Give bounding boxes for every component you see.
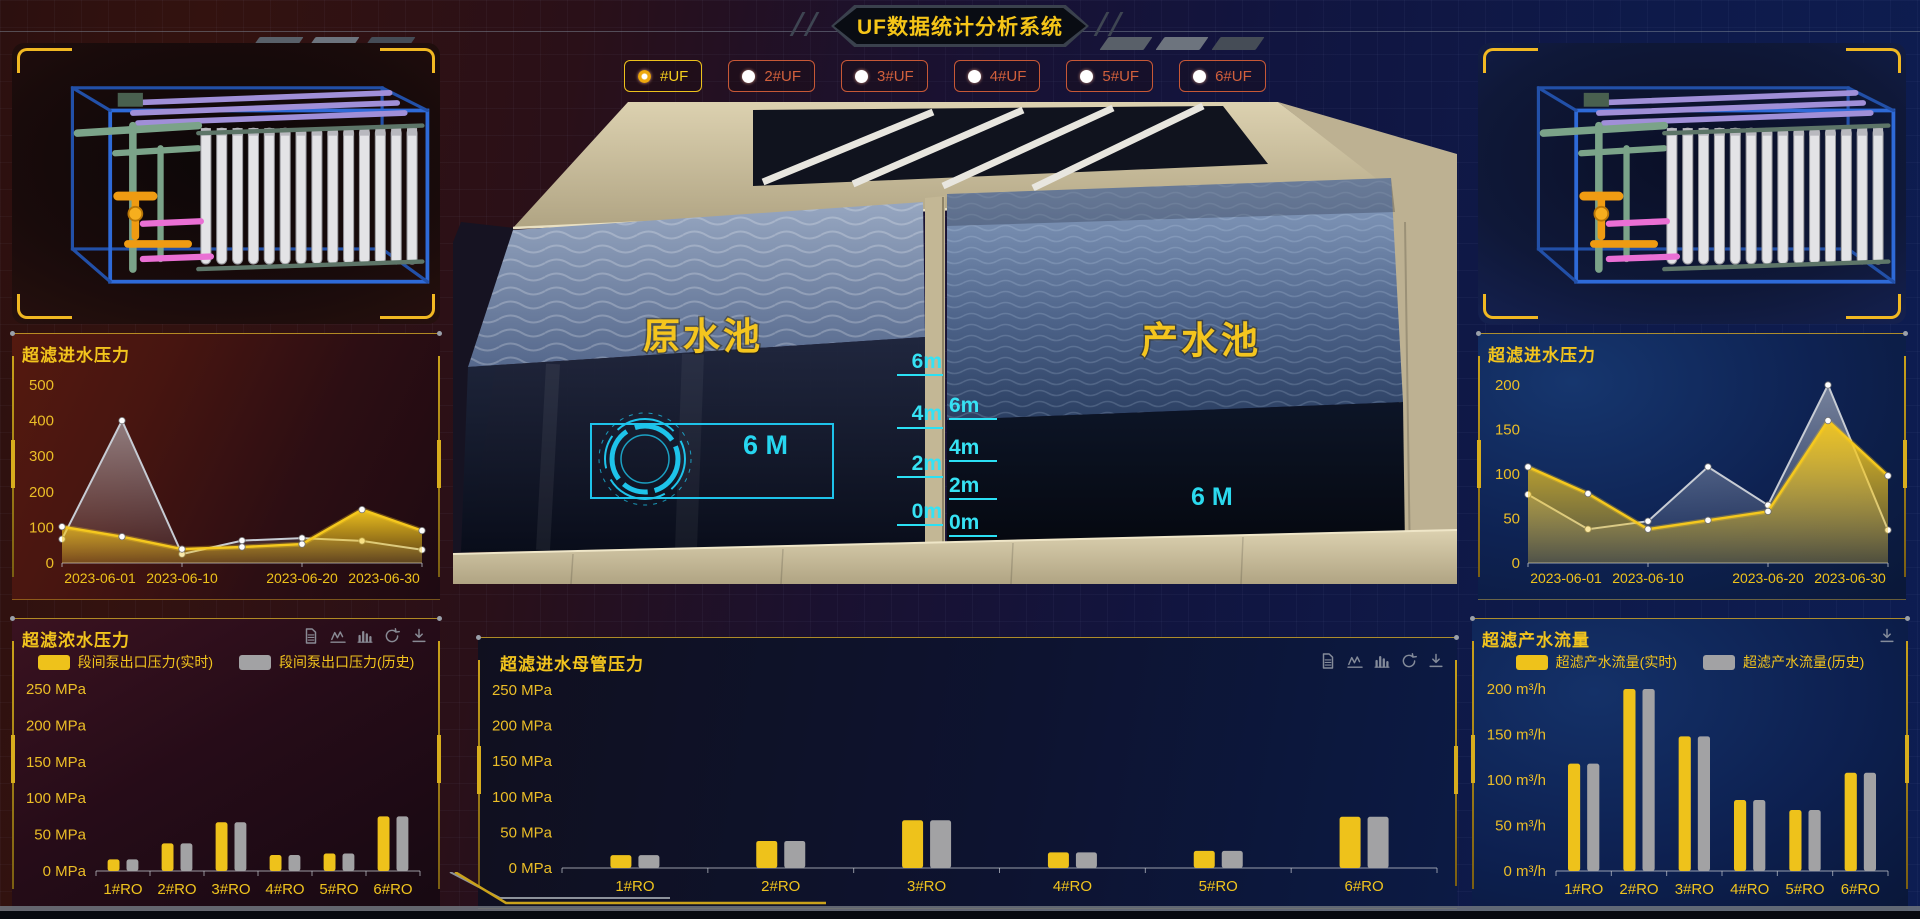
legend-label: 段间泵出口压力(实时) — [78, 652, 213, 672]
uf-tab-uf[interactable]: #UF — [624, 60, 702, 92]
svg-text:0m: 0m — [912, 500, 942, 523]
product-pool-label: 产水池 — [1141, 320, 1261, 361]
radio-dot-icon — [968, 70, 981, 83]
svg-text:2m: 2m — [912, 452, 942, 475]
chart-toolbar — [302, 627, 428, 645]
svg-text:0: 0 — [1512, 555, 1520, 572]
panel-uf-concentrate-pressure: 超滤浓水压力 段间泵出口压力(实时)段间泵出口压力(历史) 0 MPa50 MP… — [12, 618, 440, 912]
uf-concentrate-pressure-chart[interactable]: 0 MPa50 MPa100 MPa150 MPa200 MPa250 MPa1… — [14, 677, 438, 907]
uf-tab-6uf[interactable]: 6#UF — [1179, 60, 1266, 92]
raw-pool-label: 原水池 — [643, 316, 763, 357]
svg-text:0m: 0m — [949, 511, 979, 534]
svg-text:100 MPa: 100 MPa — [26, 790, 87, 807]
download-icon[interactable] — [410, 627, 428, 645]
uf-inlet-pressure-chart-right[interactable]: 0501001502002023-06-012023-06-102023-06-… — [1480, 359, 1904, 595]
svg-text:400: 400 — [29, 413, 54, 430]
uf-inlet-pressure-chart-left[interactable]: 01002003004005002023-06-012023-06-102023… — [14, 359, 438, 595]
refresh-icon[interactable] — [383, 627, 401, 645]
uf-skid-3d-render-right[interactable] — [1478, 43, 1906, 324]
svg-text:1#RO: 1#RO — [1564, 881, 1603, 898]
svg-text:200 MPa: 200 MPa — [492, 718, 553, 735]
svg-text:2023-06-01: 2023-06-01 — [64, 570, 136, 586]
bar-group-2#RO — [756, 841, 805, 868]
svg-text:2#RO: 2#RO — [157, 881, 196, 898]
bar-chart-icon[interactable] — [1373, 652, 1391, 670]
svg-text:4#RO: 4#RO — [1730, 881, 1769, 898]
svg-text:100 m³/h: 100 m³/h — [1487, 772, 1546, 789]
panel-equipment-right — [1478, 43, 1906, 324]
svg-text:100: 100 — [29, 519, 54, 536]
svg-text:1#RO: 1#RO — [103, 881, 142, 898]
radio-dot-icon — [742, 70, 755, 83]
chart-toolbar — [1878, 627, 1896, 645]
svg-text:6#RO: 6#RO — [1344, 878, 1383, 895]
line-chart-icon[interactable] — [329, 627, 347, 645]
svg-text:150 MPa: 150 MPa — [26, 754, 87, 771]
svg-text:3#RO: 3#RO — [907, 878, 946, 895]
svg-text:50: 50 — [1503, 511, 1520, 528]
uf-tab-label: 3#UF — [877, 68, 914, 85]
uf-tab-label: 4#UF — [990, 68, 1027, 85]
file-icon[interactable] — [302, 627, 320, 645]
chart-title: 超滤浓水压力 — [22, 626, 130, 651]
uf-selector-group: #UF2#UF3#UF4#UF5#UF6#UF — [624, 60, 1266, 92]
uf-product-flow-chart[interactable]: 0 m³/h50 m³/h100 m³/h150 m³/h200 m³/h1#R… — [1474, 677, 1906, 907]
legend-label: 超滤产水流量(历史) — [1743, 652, 1864, 672]
svg-text:4m: 4m — [949, 436, 979, 459]
pools-3d-scene[interactable]: 原水池 产水池 6m 4m 2m 0m 6m 4m 2m 0m — [453, 102, 1457, 584]
app-title-badge: UF数据统计分析系统 — [831, 5, 1089, 47]
legend-swatch — [1703, 655, 1735, 670]
svg-text:4#RO: 4#RO — [265, 881, 304, 898]
bar-group-1#RO — [1568, 764, 1599, 871]
legend-swatch — [239, 655, 271, 670]
svg-text:150 MPa: 150 MPa — [492, 753, 553, 770]
svg-text:4#RO: 4#RO — [1053, 878, 1092, 895]
panel-uf-inlet-header-pressure: 超滤进水母管压力 0 MPa50 MPa100 MPa150 MPa200 MP… — [478, 637, 1457, 909]
legend-label: 段间泵出口压力(历史) — [279, 652, 414, 672]
svg-text:6#RO: 6#RO — [1841, 881, 1880, 898]
left-level-value: 6 M — [743, 430, 788, 460]
bar-group-1#RO — [610, 855, 659, 868]
svg-text:150 m³/h: 150 m³/h — [1487, 727, 1546, 744]
uf-tab-label: 6#UF — [1215, 68, 1252, 85]
uf-tab-3uf[interactable]: 3#UF — [841, 60, 928, 92]
svg-text:200 MPa: 200 MPa — [26, 717, 87, 734]
line-chart-icon[interactable] — [1346, 652, 1364, 670]
download-icon[interactable] — [1878, 627, 1896, 645]
svg-text:5#RO: 5#RO — [319, 881, 358, 898]
right-level-value: 6 M — [1191, 483, 1233, 511]
download-icon[interactable] — [1427, 652, 1445, 670]
bar-group-2#RO — [1623, 689, 1654, 871]
svg-text:200: 200 — [29, 484, 54, 501]
bar-group-4#RO — [1048, 852, 1097, 868]
svg-text:100: 100 — [1495, 466, 1520, 483]
uf-skid-3d-render-left[interactable] — [12, 43, 440, 324]
chart-legend: 段间泵出口压力(实时)段间泵出口压力(历史) — [12, 652, 440, 672]
svg-text:250 MPa: 250 MPa — [492, 682, 553, 699]
bottom-frame-dark — [0, 911, 1920, 919]
bar-group-2#RO — [162, 843, 193, 871]
uf-tab-label: 2#UF — [764, 68, 801, 85]
legend-item[interactable]: 段间泵出口压力(历史) — [239, 652, 414, 672]
svg-text:6#RO: 6#RO — [373, 881, 412, 898]
svg-text:2023-06-01: 2023-06-01 — [1530, 570, 1602, 586]
legend-label: 超滤产水流量(实时) — [1556, 652, 1677, 672]
refresh-icon[interactable] — [1400, 652, 1418, 670]
uf-tab-label: 5#UF — [1102, 68, 1139, 85]
svg-text:2023-06-30: 2023-06-30 — [348, 570, 420, 586]
panel-uf-inlet-pressure-left: 超滤进水压力 01002003004005002023-06-012023-06… — [12, 333, 440, 600]
bar-group-3#RO — [1679, 736, 1710, 871]
bar-group-3#RO — [902, 820, 951, 868]
svg-text:200: 200 — [1495, 377, 1520, 394]
svg-text:4m: 4m — [912, 402, 942, 425]
svg-text:50 m³/h: 50 m³/h — [1495, 818, 1546, 835]
file-icon[interactable] — [1319, 652, 1337, 670]
product-water-pool — [947, 178, 1405, 550]
svg-text:0: 0 — [46, 555, 54, 572]
legend-item[interactable]: 超滤产水流量(历史) — [1703, 652, 1864, 672]
bar-chart-icon[interactable] — [356, 627, 374, 645]
svg-text:2#RO: 2#RO — [1619, 881, 1658, 898]
chart-title: 超滤产水流量 — [1482, 626, 1590, 651]
raw-water-pool — [461, 202, 925, 552]
chart-toolbar — [1319, 652, 1445, 670]
svg-text:300: 300 — [29, 448, 54, 465]
svg-text:2m: 2m — [949, 474, 979, 497]
radio-dot-icon — [1080, 70, 1093, 83]
legend-swatch — [38, 655, 70, 670]
bar-group-5#RO — [324, 854, 355, 871]
bar-group-4#RO — [270, 855, 301, 871]
header-decor-right — [1104, 37, 1260, 50]
chart-legend: 超滤产水流量(实时)超滤产水流量(历史) — [1472, 652, 1908, 672]
chart-title: 超滤进水压力 — [1488, 341, 1596, 366]
uf-inlet-header-pressure-chart[interactable]: 0 MPa50 MPa100 MPa150 MPa200 MPa250 MPa1… — [480, 678, 1455, 904]
svg-text:0 MPa: 0 MPa — [43, 863, 87, 880]
bar-group-5#RO — [1194, 851, 1243, 868]
svg-text:200 m³/h: 200 m³/h — [1487, 681, 1546, 698]
svg-text:50 MPa: 50 MPa — [34, 827, 86, 844]
chart-title: 超滤进水压力 — [22, 341, 130, 366]
uf-tab-label: #UF — [660, 68, 688, 85]
bar-group-6#RO — [1340, 817, 1389, 868]
radio-dot-icon — [1193, 70, 1206, 83]
bar-group-1#RO — [108, 859, 139, 871]
svg-text:5#RO: 5#RO — [1785, 881, 1824, 898]
chart-title: 超滤进水母管压力 — [500, 650, 644, 675]
legend-item[interactable]: 段间泵出口压力(实时) — [38, 652, 213, 672]
bar-group-6#RO — [378, 816, 409, 871]
legend-item[interactable]: 超滤产水流量(实时) — [1516, 652, 1677, 672]
svg-text:2023-06-20: 2023-06-20 — [266, 570, 338, 586]
svg-text:0 m³/h: 0 m³/h — [1503, 863, 1546, 880]
radio-dot-icon — [638, 70, 651, 83]
dashboard-root: UF数据统计分析系统 #UF2#UF3#UF4#UF5#UF6#UF 超滤进水压… — [0, 0, 1920, 919]
svg-text:5#RO: 5#RO — [1199, 878, 1238, 895]
panel-equipment-left — [12, 43, 440, 324]
svg-text:2023-06-10: 2023-06-10 — [146, 570, 218, 586]
uf-tab-4uf[interactable]: 4#UF — [954, 60, 1041, 92]
svg-text:2023-06-20: 2023-06-20 — [1732, 570, 1804, 586]
svg-text:50 MPa: 50 MPa — [500, 824, 552, 841]
radio-dot-icon — [855, 70, 868, 83]
svg-text:6m: 6m — [912, 350, 942, 373]
svg-text:150: 150 — [1495, 422, 1520, 439]
svg-text:250 MPa: 250 MPa — [26, 681, 87, 698]
svg-text:3#RO: 3#RO — [1675, 881, 1714, 898]
svg-text:2023-06-10: 2023-06-10 — [1612, 570, 1684, 586]
bar-group-5#RO — [1789, 810, 1820, 871]
bar-group-6#RO — [1845, 773, 1876, 871]
uf-tab-5uf[interactable]: 5#UF — [1066, 60, 1153, 92]
legend-swatch — [1516, 655, 1548, 670]
panel-uf-inlet-pressure-right: 超滤进水压力 0501001502002023-06-012023-06-102… — [1478, 333, 1906, 600]
svg-text:2023-06-30: 2023-06-30 — [1814, 570, 1886, 586]
svg-text:500: 500 — [29, 377, 54, 394]
svg-text:100 MPa: 100 MPa — [492, 789, 553, 806]
panel-uf-product-flow: 超滤产水流量 超滤产水流量(实时)超滤产水流量(历史) 0 m³/h50 m³/… — [1472, 618, 1908, 912]
bar-group-3#RO — [216, 822, 247, 871]
page-title: UF数据统计分析系统 — [857, 11, 1063, 41]
svg-text:6m: 6m — [949, 394, 979, 417]
svg-text:3#RO: 3#RO — [211, 881, 250, 898]
uf-tab-2uf[interactable]: 2#UF — [728, 60, 815, 92]
bar-group-4#RO — [1734, 800, 1765, 871]
